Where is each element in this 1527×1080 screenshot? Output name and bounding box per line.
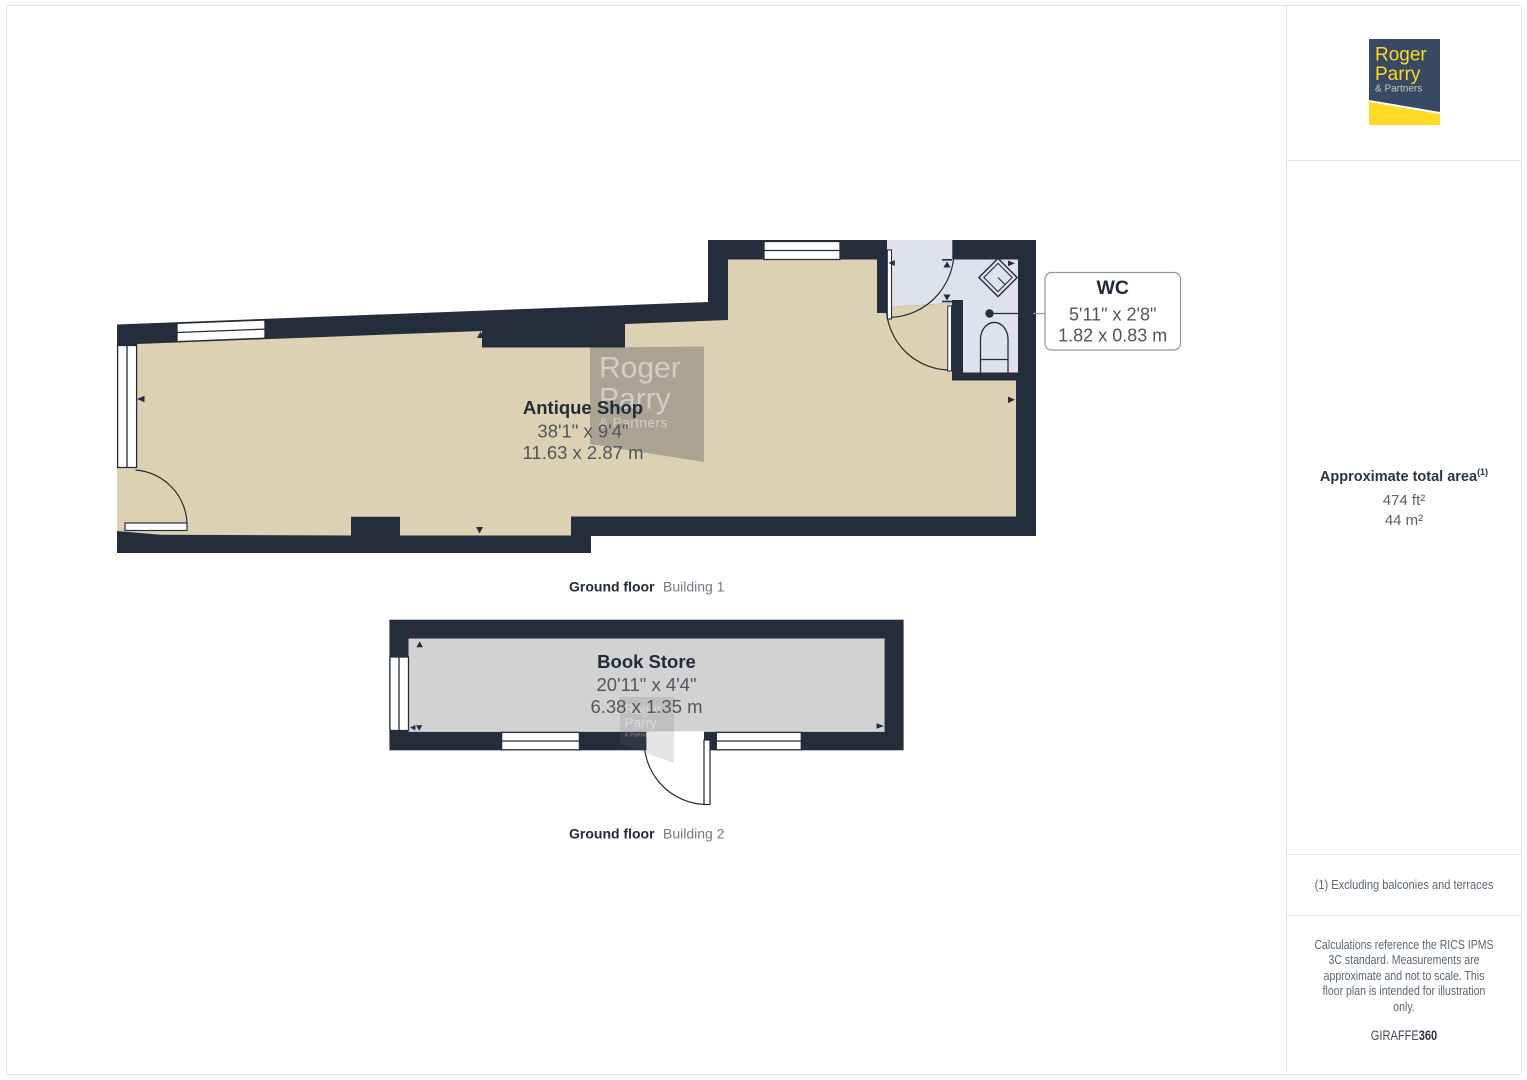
svg-text:38'1" x 9'4": 38'1" x 9'4" — [537, 421, 628, 442]
svg-text:Roger: Roger — [1375, 45, 1427, 66]
svg-text:Book Store: Book Store — [597, 651, 696, 672]
svg-text:Roger: Roger — [599, 352, 681, 385]
svg-text:11.63 x 2.87 m: 11.63 x 2.87 m — [522, 442, 643, 463]
svg-text:Ground floor: Ground floor — [569, 579, 655, 595]
svg-text:& Partners: & Partners — [625, 733, 652, 739]
svg-text:20'11" x 4'4": 20'11" x 4'4" — [596, 674, 696, 695]
svg-text:Building 2: Building 2 — [663, 826, 725, 842]
svg-text:Building 1: Building 1 — [663, 579, 725, 595]
svg-text:& Partners: & Partners — [1375, 84, 1422, 95]
svg-text:Ground floor: Ground floor — [569, 826, 655, 842]
svg-text:Antique Shop: Antique Shop — [523, 397, 643, 418]
svg-text:1.82 x 0.83 m: 1.82 x 0.83 m — [1058, 326, 1167, 346]
svg-text:WC: WC — [1096, 277, 1129, 299]
svg-text:5'11" x 2'8": 5'11" x 2'8" — [1069, 305, 1156, 325]
svg-text:6.38 x 1.35 m: 6.38 x 1.35 m — [590, 696, 702, 717]
svg-text:Parry: Parry — [1375, 64, 1421, 85]
svg-text:Parry: Parry — [625, 716, 658, 731]
